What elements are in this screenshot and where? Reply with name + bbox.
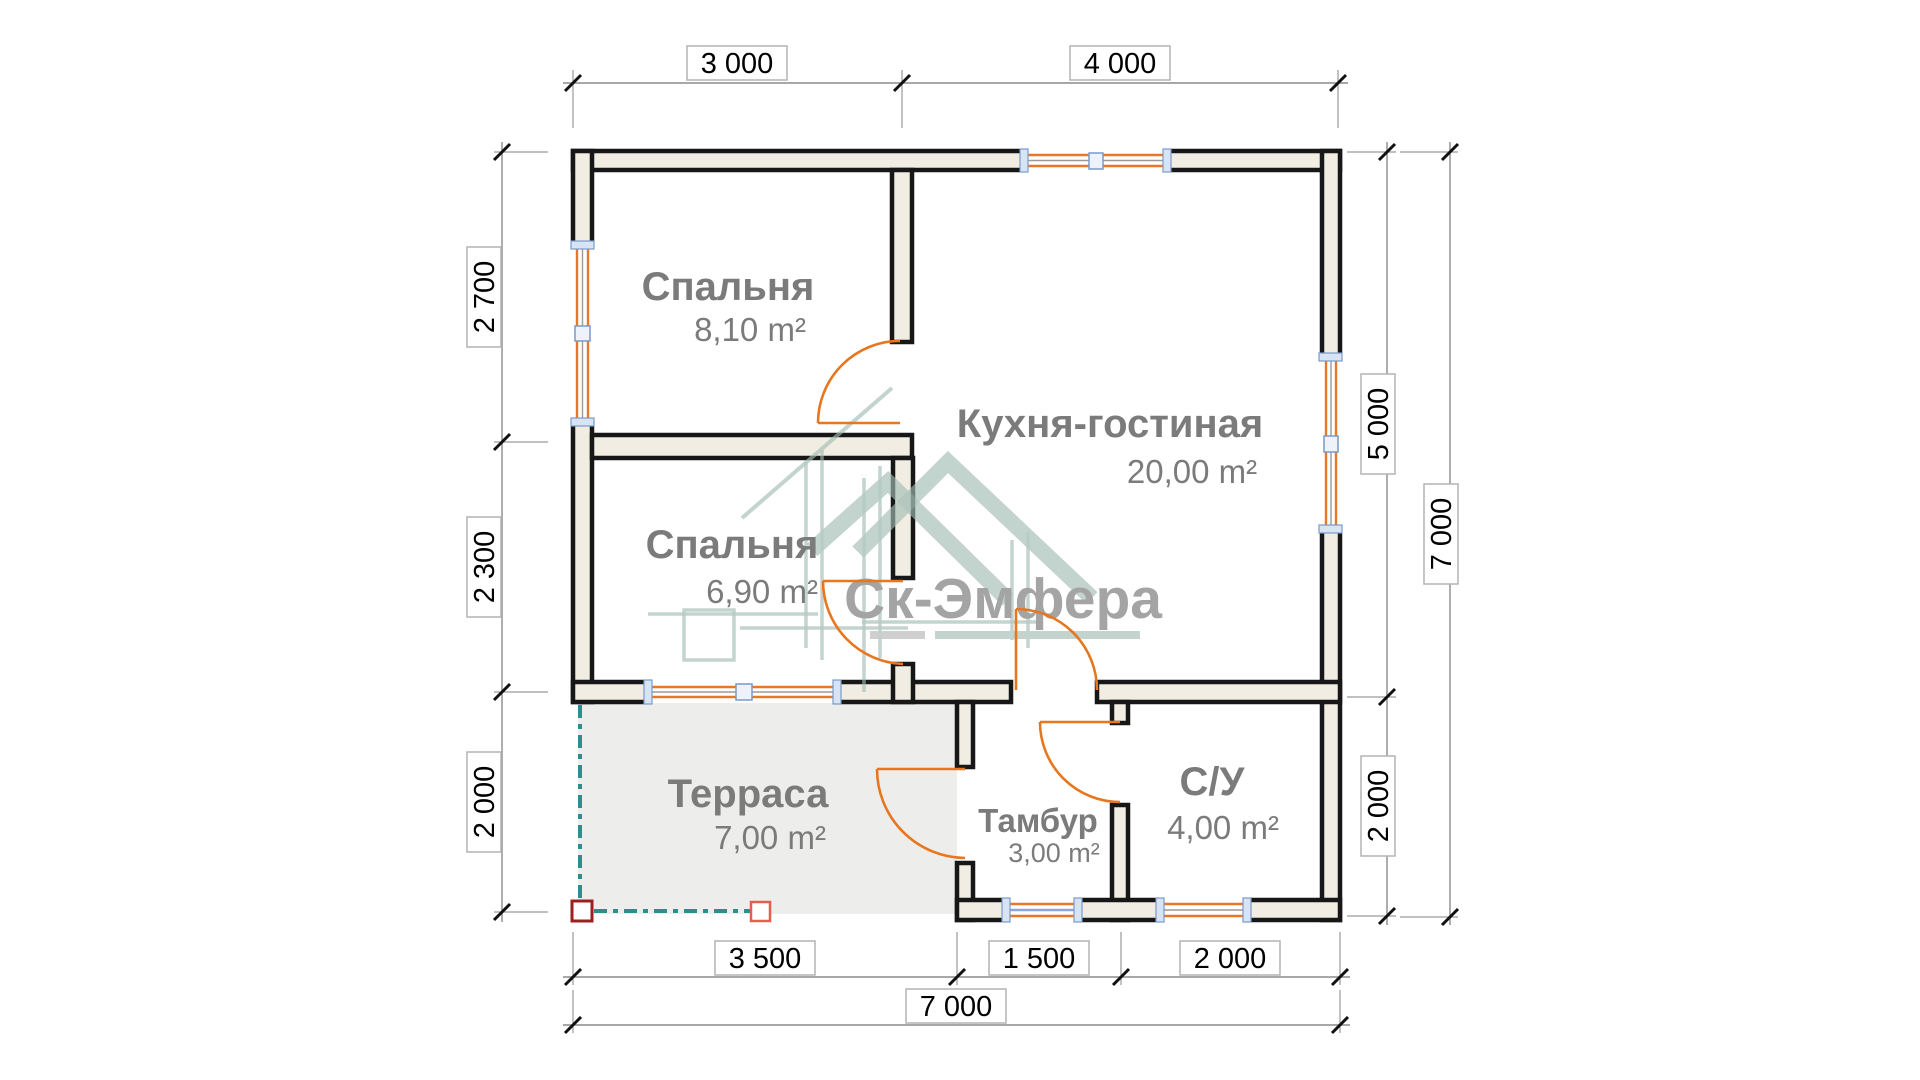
svg-text:2 300: 2 300 <box>469 531 501 604</box>
entrance-door-icon <box>1002 898 1082 922</box>
window-top-icon <box>1020 149 1171 172</box>
svg-text:3 000: 3 000 <box>701 48 774 80</box>
svg-text:5 000: 5 000 <box>1363 388 1395 461</box>
dim-label-bottom-3500: 3 500 <box>715 941 815 975</box>
svg-text:3 500: 3 500 <box>729 943 802 975</box>
wall-bedroom-divider <box>592 435 912 458</box>
window-left-icon <box>571 241 594 426</box>
terrace-post-left <box>572 901 592 921</box>
wall-right-upper <box>1322 151 1340 358</box>
area-label-kitchen: 20,00 m² <box>1127 453 1257 490</box>
dim-label-right-2000: 2 000 <box>1361 756 1395 856</box>
wall-bedroom1-kitchen <box>892 170 912 342</box>
dim-label-right-5000: 5 000 <box>1361 374 1395 474</box>
area-label-bedroom2: 6,90 m² <box>706 573 818 610</box>
dim-bottom-row1: 3 500 1 500 2 000 <box>563 932 1350 985</box>
wall-bottom-b <box>1078 900 1162 920</box>
svg-text:2 700: 2 700 <box>469 261 501 334</box>
dim-label-top-3000: 3 000 <box>687 46 787 80</box>
wall-left-lower <box>573 420 592 702</box>
room-label-terrace: Терраса <box>668 772 830 816</box>
wall-bottom-c <box>1247 900 1340 920</box>
window-south-icon <box>644 680 841 704</box>
window-right-icon <box>1319 353 1342 533</box>
floor-plan-drawing: Ск-Эмфера 3 000 <box>0 0 1920 1080</box>
wall-bedroom2-kitchen-stub <box>893 664 913 702</box>
dim-label-left-2700: 2 700 <box>467 247 501 347</box>
wall-tambour-west-upper <box>957 702 973 767</box>
svg-text:4 000: 4 000 <box>1084 48 1157 80</box>
dim-label-left-2000: 2 000 <box>467 752 501 852</box>
dim-label-right-7000: 7 000 <box>1424 484 1458 584</box>
dim-label-bottom-2000: 2 000 <box>1180 941 1280 975</box>
room-label-wc: С/У <box>1180 760 1246 804</box>
watermark-text: Ск-Эмфера <box>844 567 1163 631</box>
svg-text:2 000: 2 000 <box>469 766 501 839</box>
terrace-post-right <box>751 902 770 921</box>
wall-south-c <box>1097 682 1340 702</box>
svg-text:2 000: 2 000 <box>1194 943 1267 975</box>
wall-top-left-segment <box>573 151 1025 170</box>
dim-right-outer: 7 000 <box>1400 142 1458 925</box>
area-label-wc: 4,00 m² <box>1167 809 1279 846</box>
svg-text:7 000: 7 000 <box>1426 498 1458 571</box>
door-bedroom1-icon <box>818 341 900 423</box>
floor-plan-page: Ск-Эмфера 3 000 <box>0 0 1920 1080</box>
svg-text:2 000: 2 000 <box>1363 770 1395 843</box>
room-label-bedroom1: Спальня <box>642 265 815 309</box>
svg-text:7 000: 7 000 <box>920 991 993 1023</box>
dim-left: 2 700 2 300 2 000 <box>467 142 548 922</box>
dim-label-bottom-1500: 1 500 <box>989 941 1089 975</box>
wall-right-lower <box>1322 528 1340 920</box>
svg-text:1 500: 1 500 <box>1003 943 1076 975</box>
room-label-bedroom2: Спальня <box>646 523 819 567</box>
area-label-bedroom1: 8,10 m² <box>694 311 806 348</box>
wall-south-a <box>573 682 650 702</box>
window-wc-icon <box>1156 898 1251 922</box>
wall-tambour-wc-upper <box>1112 702 1128 723</box>
wall-left-upper <box>573 151 592 247</box>
room-label-kitchen: Кухня-гостиная <box>957 402 1263 446</box>
dim-bottom-row2: 7 000 <box>563 989 1350 1033</box>
wall-bottom-a <box>957 900 1008 920</box>
door-wc-icon <box>1040 722 1120 802</box>
area-label-terrace: 7,00 m² <box>714 819 826 856</box>
dim-top: 3 000 4 000 <box>563 46 1348 128</box>
dim-label-bottom-7000: 7 000 <box>906 989 1006 1023</box>
dim-label-left-2300: 2 300 <box>467 517 501 617</box>
area-label-tambour: 3,00 m² <box>1008 838 1100 868</box>
wall-top-right-segment <box>1165 151 1340 170</box>
dim-label-top-4000: 4 000 <box>1070 46 1170 80</box>
dim-right-inner: 5 000 2 000 <box>1347 142 1396 925</box>
room-label-tambour: Тамбур <box>978 802 1098 839</box>
